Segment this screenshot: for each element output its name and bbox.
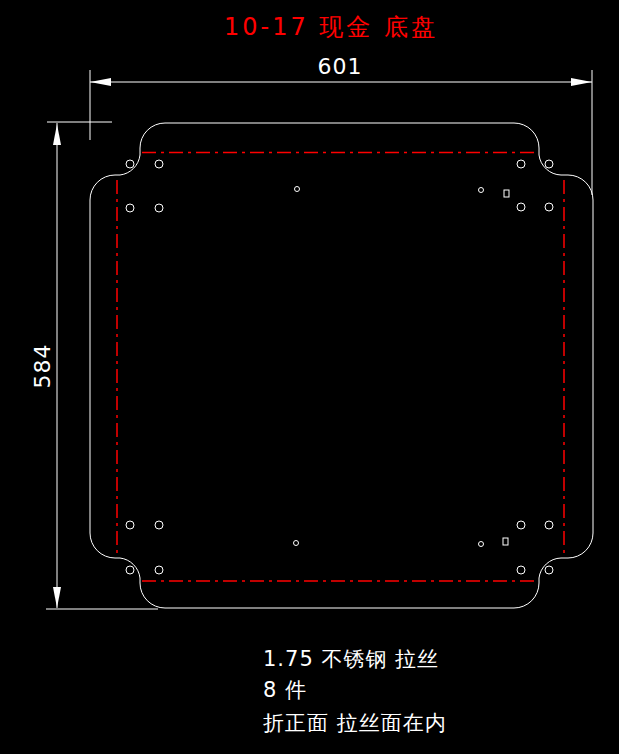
dimension-height[interactable]: 584 [30,122,158,609]
holes-layer [126,160,553,574]
small-hole[interactable] [295,187,300,192]
corner-hole[interactable] [126,204,134,212]
dim-width-value[interactable]: 601 [318,54,363,79]
dim-height-value[interactable]: 584 [30,344,55,389]
note-quantity[interactable]: 8 件 [263,678,307,702]
corner-hole[interactable] [545,521,553,529]
plate-outline[interactable] [90,123,593,608]
cad-drawing: 10-17 现金 底盘 601 584 1.75 不锈钢 [0,0,619,754]
corner-hole[interactable] [155,204,163,212]
corner-hole[interactable] [517,521,525,529]
cad-canvas: 10-17 现金 底盘 601 584 1.75 不锈钢 [0,0,619,754]
corner-hole[interactable] [126,160,134,168]
rect-slot[interactable] [504,190,509,197]
note-instruction[interactable]: 折正面 拉丝面在内 [263,711,447,735]
small-hole[interactable] [479,188,484,193]
corner-hole[interactable] [126,566,134,574]
corner-hole[interactable] [517,160,525,168]
small-hole[interactable] [479,542,484,547]
drawing-title[interactable]: 10-17 现金 底盘 [224,13,438,41]
small-hole[interactable] [294,541,299,546]
note-material[interactable]: 1.75 不锈钢 拉丝 [263,647,439,671]
corner-hole[interactable] [155,160,163,168]
rect-slot[interactable] [503,538,508,545]
corner-hole[interactable] [545,566,553,574]
corner-hole[interactable] [517,566,525,574]
dim-arrow-top [53,124,61,145]
corner-hole[interactable] [545,160,553,168]
corner-hole[interactable] [155,521,163,529]
dim-arrow-bottom [53,587,61,608]
corner-hole[interactable] [545,203,553,211]
dim-arrow-right [571,78,592,86]
dimension-width[interactable]: 601 [90,54,592,195]
corner-hole[interactable] [155,566,163,574]
dim-arrow-left [90,78,111,86]
corner-hole[interactable] [517,203,525,211]
corner-hole[interactable] [126,521,134,529]
